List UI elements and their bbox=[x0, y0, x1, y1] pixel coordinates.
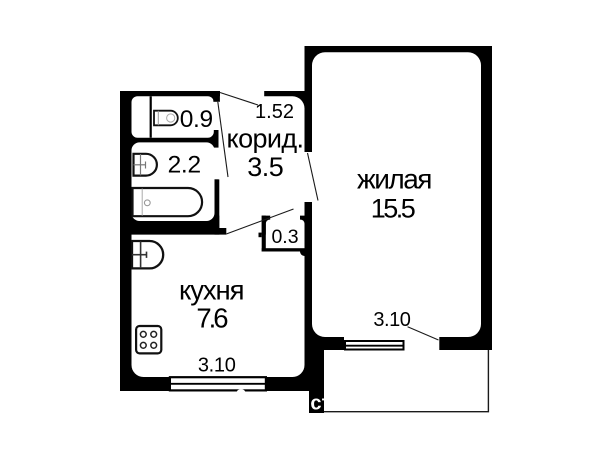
svg-text:корид.: корид. bbox=[227, 124, 304, 154]
svg-text:3.5: 3.5 bbox=[247, 152, 283, 182]
svg-text:7.6: 7.6 bbox=[196, 302, 228, 333]
svg-text:0.9: 0.9 bbox=[180, 106, 213, 133]
svg-text:0.3: 0.3 bbox=[271, 226, 298, 248]
svg-text:15.5: 15.5 bbox=[371, 194, 415, 224]
svg-text:2.2: 2.2 bbox=[168, 151, 201, 178]
svg-text:кухня: кухня bbox=[179, 275, 243, 306]
svg-text:жилая: жилая bbox=[357, 164, 431, 195]
svg-text:3.10: 3.10 bbox=[373, 309, 410, 331]
svg-text:1.52: 1.52 bbox=[255, 101, 294, 123]
svg-text:3.10: 3.10 bbox=[198, 354, 236, 376]
